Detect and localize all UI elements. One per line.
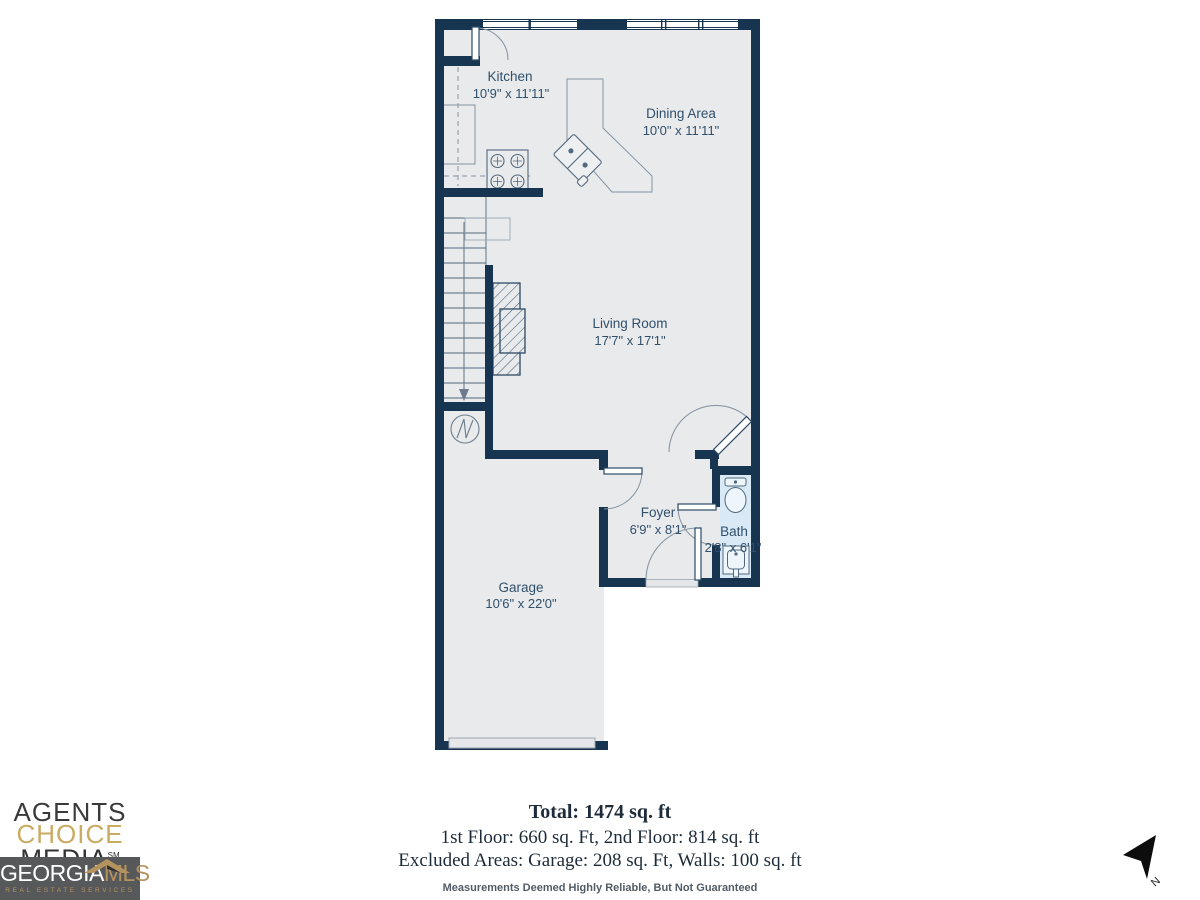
garage-door-opening xyxy=(599,470,608,507)
roof-icon xyxy=(84,858,130,874)
stove-icon xyxy=(487,150,528,192)
dining-window xyxy=(627,20,738,29)
kitchen-label: Kitchen xyxy=(487,69,532,84)
foyer-dims: 6'9" x 8'1" xyxy=(630,522,687,537)
bath-label: Bath xyxy=(720,524,748,539)
total-area: Total: 1474 sq. ft xyxy=(0,801,1200,824)
area-summary: Total: 1474 sq. ft 1st Floor: 660 sq. Ft… xyxy=(0,801,1200,894)
floorplan-page: Kitchen 10'9" x 11'11" Dining Area 10'0"… xyxy=(0,0,1200,900)
georgia-mls-logo: GEORGIAMLS REAL ESTATE SERVICES xyxy=(0,857,140,900)
bath-dims: 2'8" x 6'1" xyxy=(705,540,762,555)
floor-areas: 1st Floor: 660 sq. Ft, 2nd Floor: 814 sq… xyxy=(0,827,1200,849)
fireplace xyxy=(493,283,525,375)
floor-plan: Kitchen 10'9" x 11'11" Dining Area 10'0"… xyxy=(0,0,1200,900)
living-room-label: Living Room xyxy=(592,316,667,331)
living-room-dims: 17'7" x 17'1" xyxy=(594,333,666,348)
dining-dims: 10'0" x 11'11" xyxy=(643,123,720,138)
garage-dims: 10'6" x 22'0" xyxy=(485,596,557,611)
garage-label: Garage xyxy=(498,580,543,595)
disclaimer-text: Measurements Deemed Highly Reliable, But… xyxy=(0,882,1200,894)
foyer-label: Foyer xyxy=(641,505,676,520)
dining-label: Dining Area xyxy=(646,106,716,121)
logo-line-choice: CHOICE xyxy=(0,823,140,845)
excluded-areas: Excluded Areas: Garage: 208 sq. Ft, Wall… xyxy=(0,850,1200,872)
georgia-mls-tagline: REAL ESTATE SERVICES xyxy=(0,887,140,894)
kitchen-dims: 10'9" x 11'11" xyxy=(473,86,550,101)
branding-block: AGENTS CHOICE MEDIASM GEORGIAMLS REAL ES… xyxy=(0,801,150,900)
garage-door xyxy=(449,738,595,748)
toilet-icon xyxy=(725,478,746,513)
front-stoop xyxy=(646,580,698,588)
kitchen-window xyxy=(483,20,577,29)
